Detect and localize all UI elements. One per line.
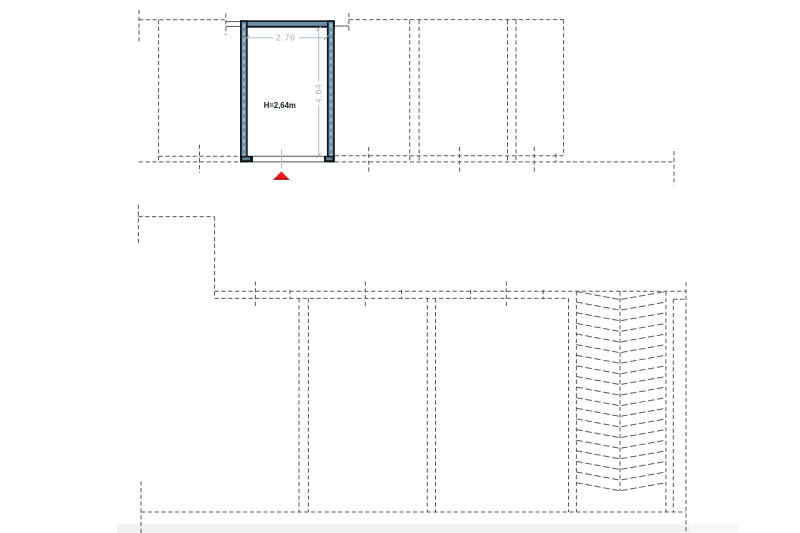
svg-text:H=2,64m: H=2,64m [264, 101, 296, 110]
svg-text:2.76: 2.76 [276, 33, 296, 43]
svg-text:4.64: 4.64 [314, 84, 324, 104]
